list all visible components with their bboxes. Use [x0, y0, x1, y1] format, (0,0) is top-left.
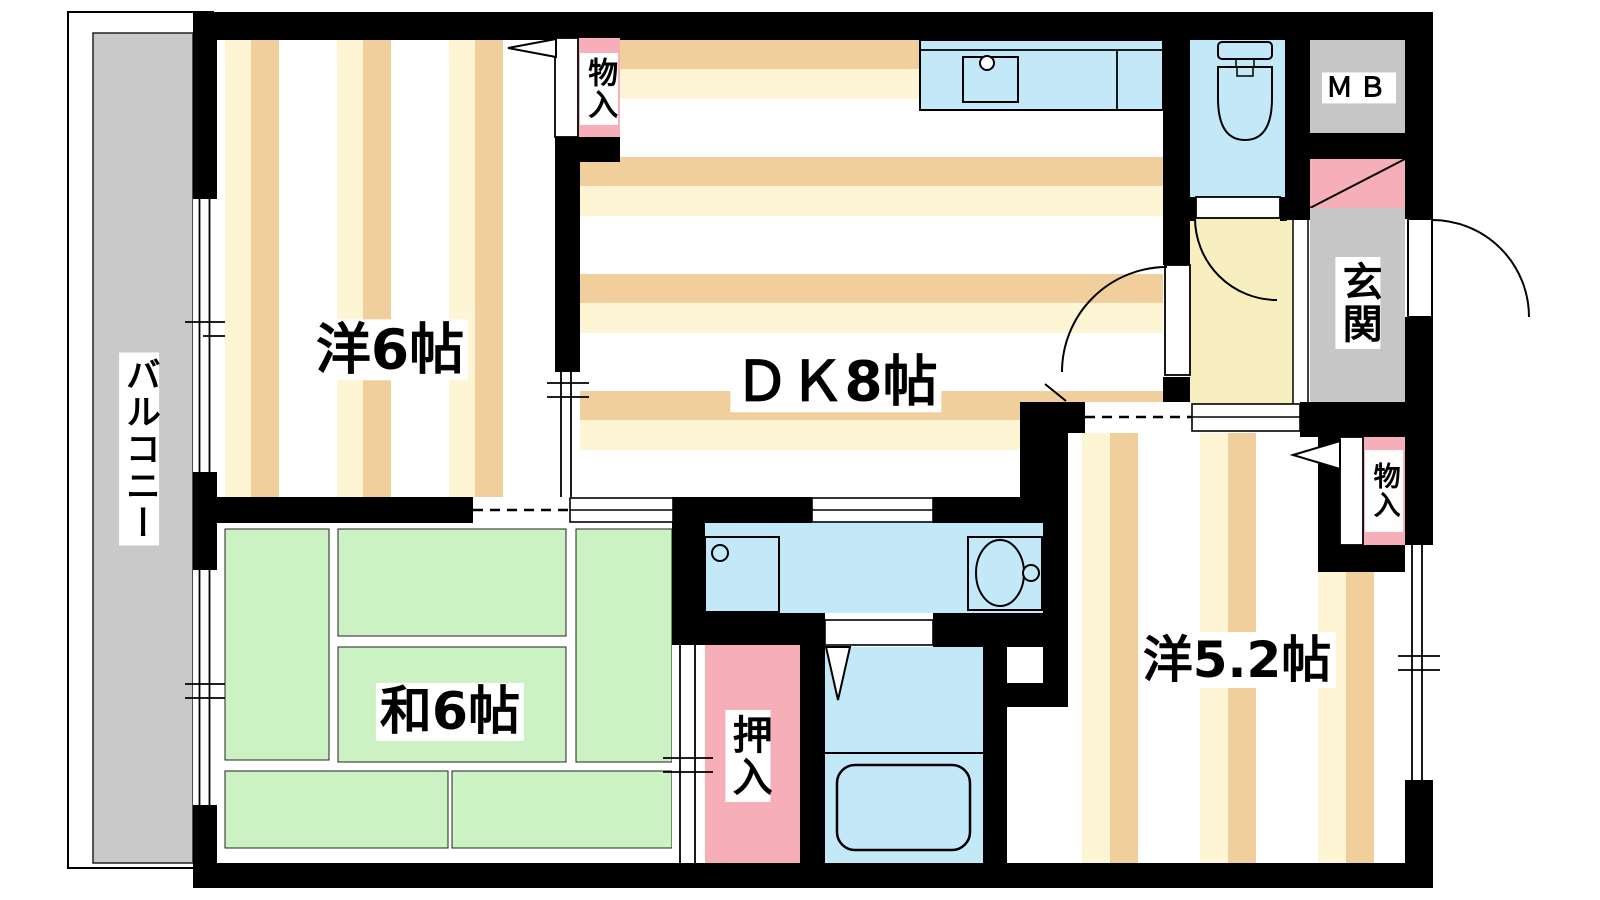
- room-label-oshiire: 押入: [725, 710, 770, 802]
- room-label-storage-right: 物入: [1368, 458, 1399, 524]
- hallway-floor: [1190, 218, 1292, 406]
- room-label-japanese6: 和6帖: [376, 683, 524, 741]
- dashed-opening-western52: [1085, 402, 1192, 433]
- floor-plan-graphics: [0, 0, 1600, 900]
- room-label-balcony: バルコニー: [119, 353, 159, 546]
- sliding-door-hall-western52: [1192, 404, 1300, 431]
- western6-floor: [217, 40, 555, 497]
- kitchen-faucet: [980, 56, 994, 70]
- entrance-step: [1292, 218, 1310, 406]
- room-label-western6: 洋6帖: [312, 319, 468, 380]
- room-label-meter-box: ＭＢ: [1322, 72, 1396, 103]
- dashed-opening-japanese6: [473, 497, 570, 523]
- room-label-dk: ＤＫ8帖: [730, 351, 941, 412]
- toilet-floor: [1190, 40, 1287, 197]
- sliding-door-dk-japanese6: [570, 498, 673, 522]
- room-label-storage-top: 物入: [582, 53, 616, 125]
- room-label-entrance: 玄関: [1335, 257, 1380, 349]
- bathroom-floor: [825, 647, 983, 863]
- floor-plan: 洋6帖 ＤＫ8帖 和6帖 洋5.2帖 押入 物入 物入 玄関 ＭＢ バルコニー: [0, 0, 1600, 900]
- shoe-cabinet: [1310, 159, 1405, 208]
- sliding-door-dk-washroom: [812, 498, 933, 522]
- kitchen-counter: [920, 40, 1163, 110]
- room-label-western52: 洋5.2帖: [1139, 632, 1336, 688]
- entrance-door: [1405, 219, 1529, 317]
